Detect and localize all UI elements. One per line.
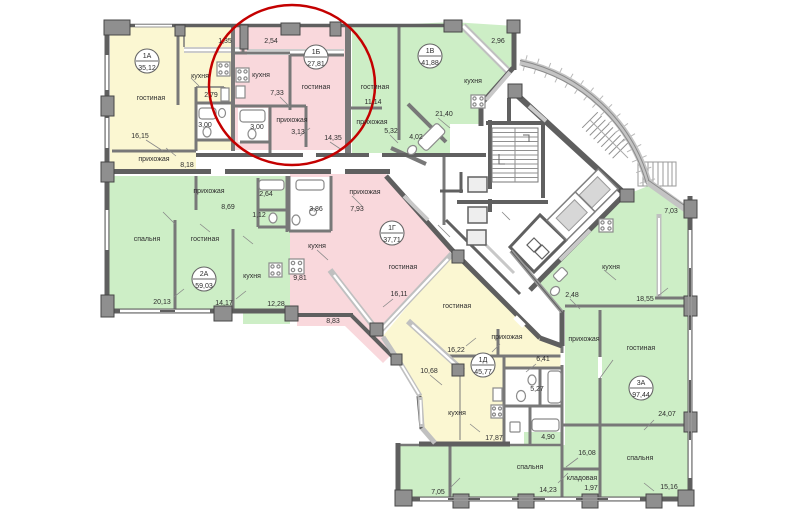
svg-text:1Д: 1Д [479,357,488,364]
svg-text:2,96: 2,96 [491,38,505,45]
svg-text:гостиная: гостиная [137,95,166,102]
svg-text:2,79: 2,79 [204,92,218,99]
svg-text:гостиная: гостиная [443,303,472,310]
svg-text:прихожая: прихожая [356,119,387,126]
svg-text:4,90: 4,90 [541,434,555,441]
svg-text:3,00: 3,00 [250,124,264,131]
svg-text:прихожая: прихожая [349,189,380,196]
svg-text:прихожая: прихожая [568,336,599,343]
svg-text:гостиная: гостиная [627,345,656,352]
svg-text:35,12: 35,12 [138,65,156,72]
svg-text:11,14: 11,14 [365,99,382,106]
svg-text:3,13: 3,13 [291,129,305,136]
svg-text:кухня: кухня [308,243,326,250]
svg-text:24,07: 24,07 [658,411,676,418]
svg-text:20,13: 20,13 [153,299,171,306]
svg-text:5,27: 5,27 [530,386,544,393]
svg-text:16,15: 16,15 [131,133,149,140]
svg-text:прихожая: прихожая [276,117,307,124]
svg-text:7,05: 7,05 [431,489,445,496]
svg-text:прихожая: прихожая [138,156,169,163]
svg-text:8,69: 8,69 [221,204,235,211]
svg-text:кухня: кухня [464,78,482,85]
svg-text:кухня: кухня [243,273,261,280]
svg-text:14,23: 14,23 [539,487,557,494]
svg-text:гостиная: гостиная [361,84,390,91]
svg-text:18,55: 18,55 [636,296,654,303]
svg-text:1Г: 1Г [388,225,396,232]
svg-text:1В: 1В [426,48,435,55]
svg-text:4,02: 4,02 [409,134,423,141]
svg-text:2,64: 2,64 [259,191,273,198]
svg-text:1А: 1А [143,53,152,60]
svg-text:спальня: спальня [134,236,161,243]
svg-text:кухня: кухня [252,72,270,79]
svg-text:9,81: 9,81 [293,275,307,282]
svg-text:кухня: кухня [448,410,466,417]
svg-text:2,48: 2,48 [565,292,579,299]
svg-text:кухня: кухня [191,73,209,80]
svg-text:3,86: 3,86 [309,206,323,213]
svg-text:3,00: 3,00 [198,122,212,129]
svg-text:гостиная: гостиная [389,264,418,271]
svg-text:7,93: 7,93 [350,206,364,213]
svg-text:гостиная: гостиная [302,84,331,91]
svg-text:кладовая: кладовая [567,475,598,482]
svg-text:2,54: 2,54 [264,38,278,45]
svg-text:97,44: 97,44 [632,392,650,399]
svg-text:5,32: 5,32 [384,128,398,135]
svg-text:прихожая: прихожая [193,188,224,195]
svg-text:37,71: 37,71 [383,237,401,244]
svg-text:59,03: 59,03 [195,283,213,290]
svg-text:6,41: 6,41 [536,356,550,363]
svg-text:16,11: 16,11 [391,291,408,298]
svg-text:спальня: спальня [627,455,654,462]
svg-text:15,16: 15,16 [660,484,678,491]
svg-text:12,28: 12,28 [267,301,285,308]
svg-text:2А: 2А [200,271,209,278]
svg-text:1,12: 1,12 [252,212,266,219]
svg-text:21,40: 21,40 [435,111,453,118]
svg-text:14,35: 14,35 [324,135,342,142]
svg-text:8,83: 8,83 [326,318,340,325]
svg-text:гостиная: гостиная [191,236,220,243]
svg-text:16,08: 16,08 [578,450,596,457]
svg-text:17,87: 17,87 [485,435,503,442]
svg-text:1,97: 1,97 [584,485,598,492]
svg-text:7,33: 7,33 [270,90,284,97]
svg-text:16,22: 16,22 [447,347,465,354]
svg-text:7,03: 7,03 [664,208,678,215]
svg-text:10,68: 10,68 [420,368,438,375]
svg-text:кухня: кухня [602,264,620,271]
svg-text:27,81: 27,81 [307,61,325,68]
svg-text:8,18: 8,18 [180,162,194,169]
svg-text:14,17: 14,17 [215,300,233,307]
svg-text:3А: 3А [637,380,646,387]
svg-text:прихожая: прихожая [491,334,522,341]
svg-text:спальня: спальня [517,464,544,471]
svg-text:41,88: 41,88 [421,60,439,67]
svg-text:45,77: 45,77 [474,369,492,376]
svg-text:1Б: 1Б [312,49,321,56]
svg-text:1,35: 1,35 [218,38,232,45]
